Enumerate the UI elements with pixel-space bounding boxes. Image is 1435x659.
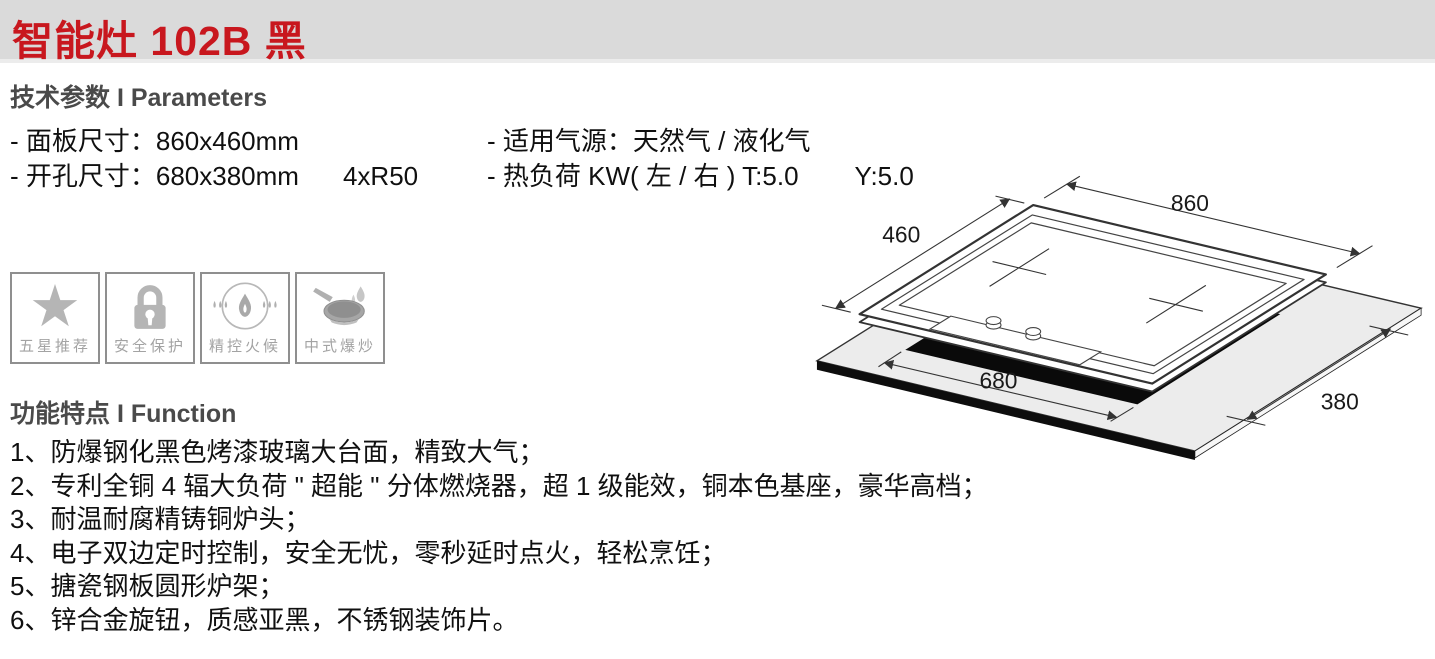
wok-stirfry-icon	[297, 278, 383, 336]
function-heading: 功能特点 I Function	[10, 394, 236, 430]
feature-badge-safety: 安全保护	[105, 272, 195, 364]
function-item-3: 3、耐温耐腐精铸铜炉头；	[10, 503, 988, 537]
knob-left	[986, 317, 1001, 329]
param-heat-load-left: - 热负荷 KW( 左 / 右 ) T:5.0	[487, 161, 799, 191]
function-item-2: 2、专利全铜 4 辐大负荷 " 超能 " 分体燃烧器，超 1 级能效，铜本色基座…	[10, 470, 988, 504]
dimension-label-860: 860	[1171, 190, 1209, 216]
dimension-label-680: 680	[979, 368, 1017, 394]
feature-badge-label: 五星推荐	[12, 335, 98, 356]
function-item-5: 5、搪瓷钢板圆形炉架；	[10, 570, 988, 604]
parameters-heading: 技术参数 I Parameters	[10, 78, 267, 114]
function-item-1: 1、防爆钢化黑色烤漆玻璃大台面，精致大气；	[10, 436, 988, 470]
title-bar: 智能灶 102B 黑	[0, 0, 1435, 63]
function-item-6: 6、锌合金旋钮，质感亚黑，不锈钢装饰片。	[10, 604, 988, 638]
function-item-4: 4、电子双边定时控制，安全无忧，零秒延时点火，轻松烹饪；	[10, 537, 988, 571]
flame-control-icon	[202, 278, 288, 336]
product-title: 智能灶 102B 黑	[12, 7, 307, 67]
dimension-label-380: 380	[1321, 388, 1359, 414]
feature-badge-label: 精控火候	[202, 335, 288, 356]
function-list: 1、防爆钢化黑色烤漆玻璃大台面，精致大气； 2、专利全铜 4 辐大负荷 " 超能…	[10, 436, 988, 637]
feature-badge-five-star: ★ 五星推荐	[10, 272, 100, 364]
param-gas-source: - 适用气源：天然气 / 液化气	[487, 121, 811, 158]
feature-badge-label: 中式爆炒	[297, 335, 383, 356]
param-cutout-radius: 4xR50	[343, 161, 418, 191]
knob-right	[1026, 328, 1041, 340]
param-cutout-size-value: - 开孔尺寸：680x380mm	[10, 161, 299, 191]
feature-badge-label: 安全保护	[107, 335, 193, 356]
dimension-label-460: 460	[882, 222, 920, 248]
five-star-icon: ★	[12, 278, 98, 336]
param-panel-size: - 面板尺寸：860x460mm	[10, 121, 299, 158]
feature-badge-wok: 中式爆炒	[295, 272, 385, 364]
param-cutout-size: - 开孔尺寸：680x380mm4xR50	[10, 156, 418, 193]
safety-lock-icon	[107, 278, 193, 336]
feature-badge-flame-control: 精控火候	[200, 272, 290, 364]
